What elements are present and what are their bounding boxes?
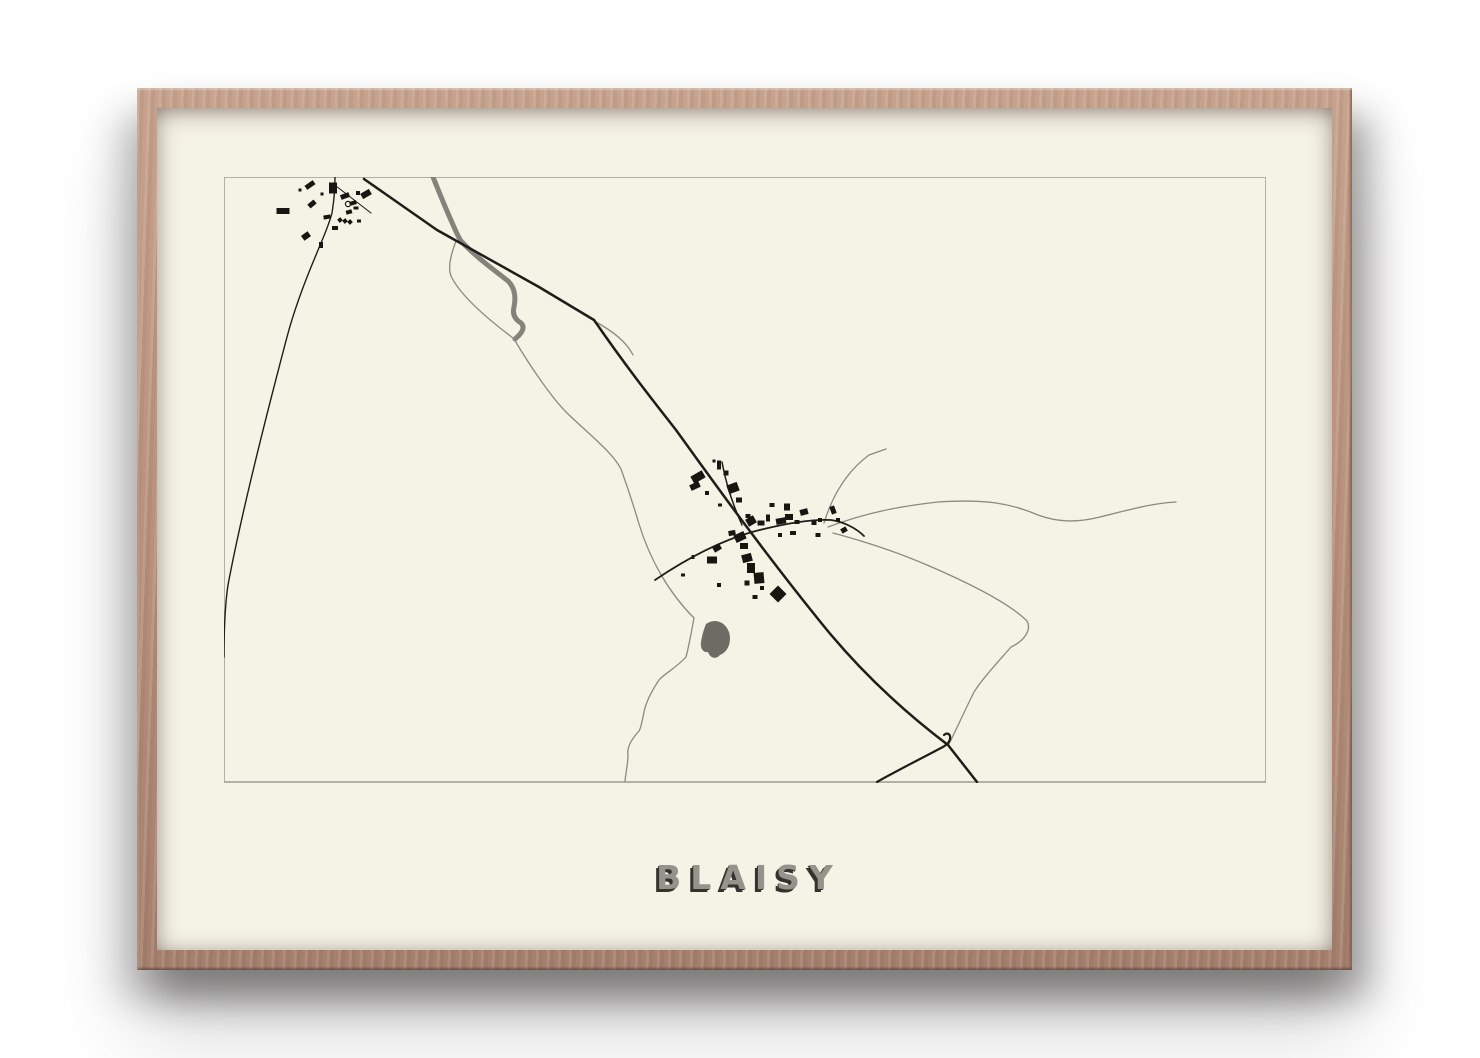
building: [346, 209, 353, 214]
building: [329, 183, 337, 194]
building: [816, 533, 821, 537]
building: [342, 218, 348, 224]
building: [790, 531, 796, 535]
building: [347, 219, 353, 225]
building: [354, 207, 359, 210]
building: [360, 189, 372, 199]
pond: [701, 621, 730, 658]
building: [784, 504, 790, 511]
building: [770, 586, 787, 603]
poster-title: BLAISY: [157, 858, 1332, 897]
map-canvas: [224, 177, 1266, 783]
building: [681, 574, 685, 577]
building: [745, 581, 750, 586]
building: [321, 193, 324, 196]
building: [705, 491, 709, 495]
map-border: [224, 177, 1266, 782]
building: [760, 586, 764, 590]
building: [741, 553, 753, 563]
building: [692, 555, 695, 559]
building: [304, 180, 315, 190]
picture-frame: BLAISY: [137, 88, 1352, 970]
minor-road: [833, 533, 1029, 744]
building: [795, 520, 800, 524]
major-road: [364, 179, 977, 782]
building: [778, 533, 782, 537]
major-road: [224, 177, 335, 657]
minor-road: [514, 339, 694, 781]
building: [740, 543, 748, 549]
building: [713, 460, 716, 463]
building: [753, 595, 758, 599]
building: [357, 220, 361, 223]
building: [785, 514, 793, 520]
building: [766, 515, 770, 522]
building: [726, 482, 739, 494]
building: [307, 200, 316, 209]
building: [277, 208, 290, 214]
building: [836, 518, 840, 522]
poster-paper: BLAISY: [157, 108, 1332, 950]
building: [356, 191, 360, 195]
building: [319, 242, 323, 248]
building: [332, 226, 338, 230]
minor-road: [828, 501, 1176, 527]
building: [707, 557, 717, 564]
minor-road: [594, 321, 633, 355]
building: [712, 543, 722, 552]
building: [840, 526, 848, 533]
building: [736, 498, 742, 503]
building: [758, 521, 765, 526]
building: [770, 503, 775, 507]
building: [754, 572, 765, 584]
building: [812, 521, 817, 525]
building: [724, 471, 729, 476]
building: [301, 231, 311, 241]
major-road: [655, 520, 864, 580]
building: [747, 563, 755, 573]
building: [799, 508, 808, 516]
major-road: [877, 734, 950, 782]
building: [717, 583, 721, 587]
building: [299, 189, 302, 192]
building: [829, 505, 836, 514]
poster-scene: BLAISY: [0, 0, 1480, 1058]
building: [337, 217, 343, 223]
building: [818, 518, 822, 522]
building: [718, 504, 722, 507]
thick-road: [433, 177, 523, 339]
building: [717, 461, 721, 470]
